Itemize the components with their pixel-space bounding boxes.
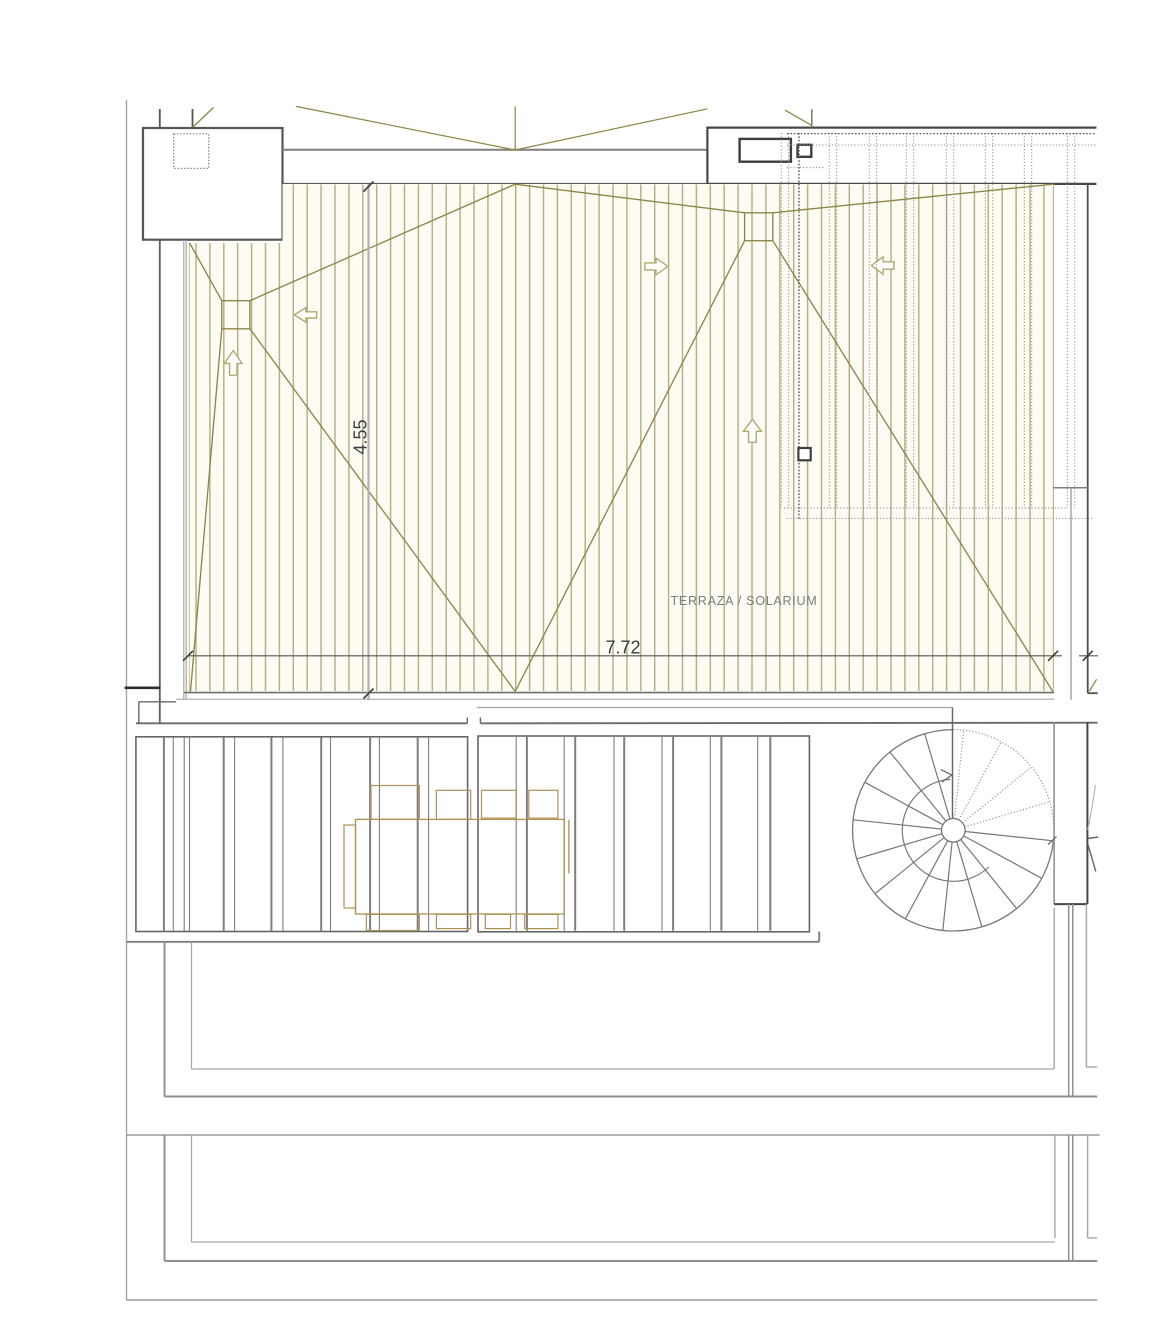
svg-text:4.55: 4.55 xyxy=(351,419,371,454)
svg-text:7.72: 7.72 xyxy=(605,638,640,658)
svg-text:TERRAZA / SOLARIUM: TERRAZA / SOLARIUM xyxy=(671,594,818,608)
